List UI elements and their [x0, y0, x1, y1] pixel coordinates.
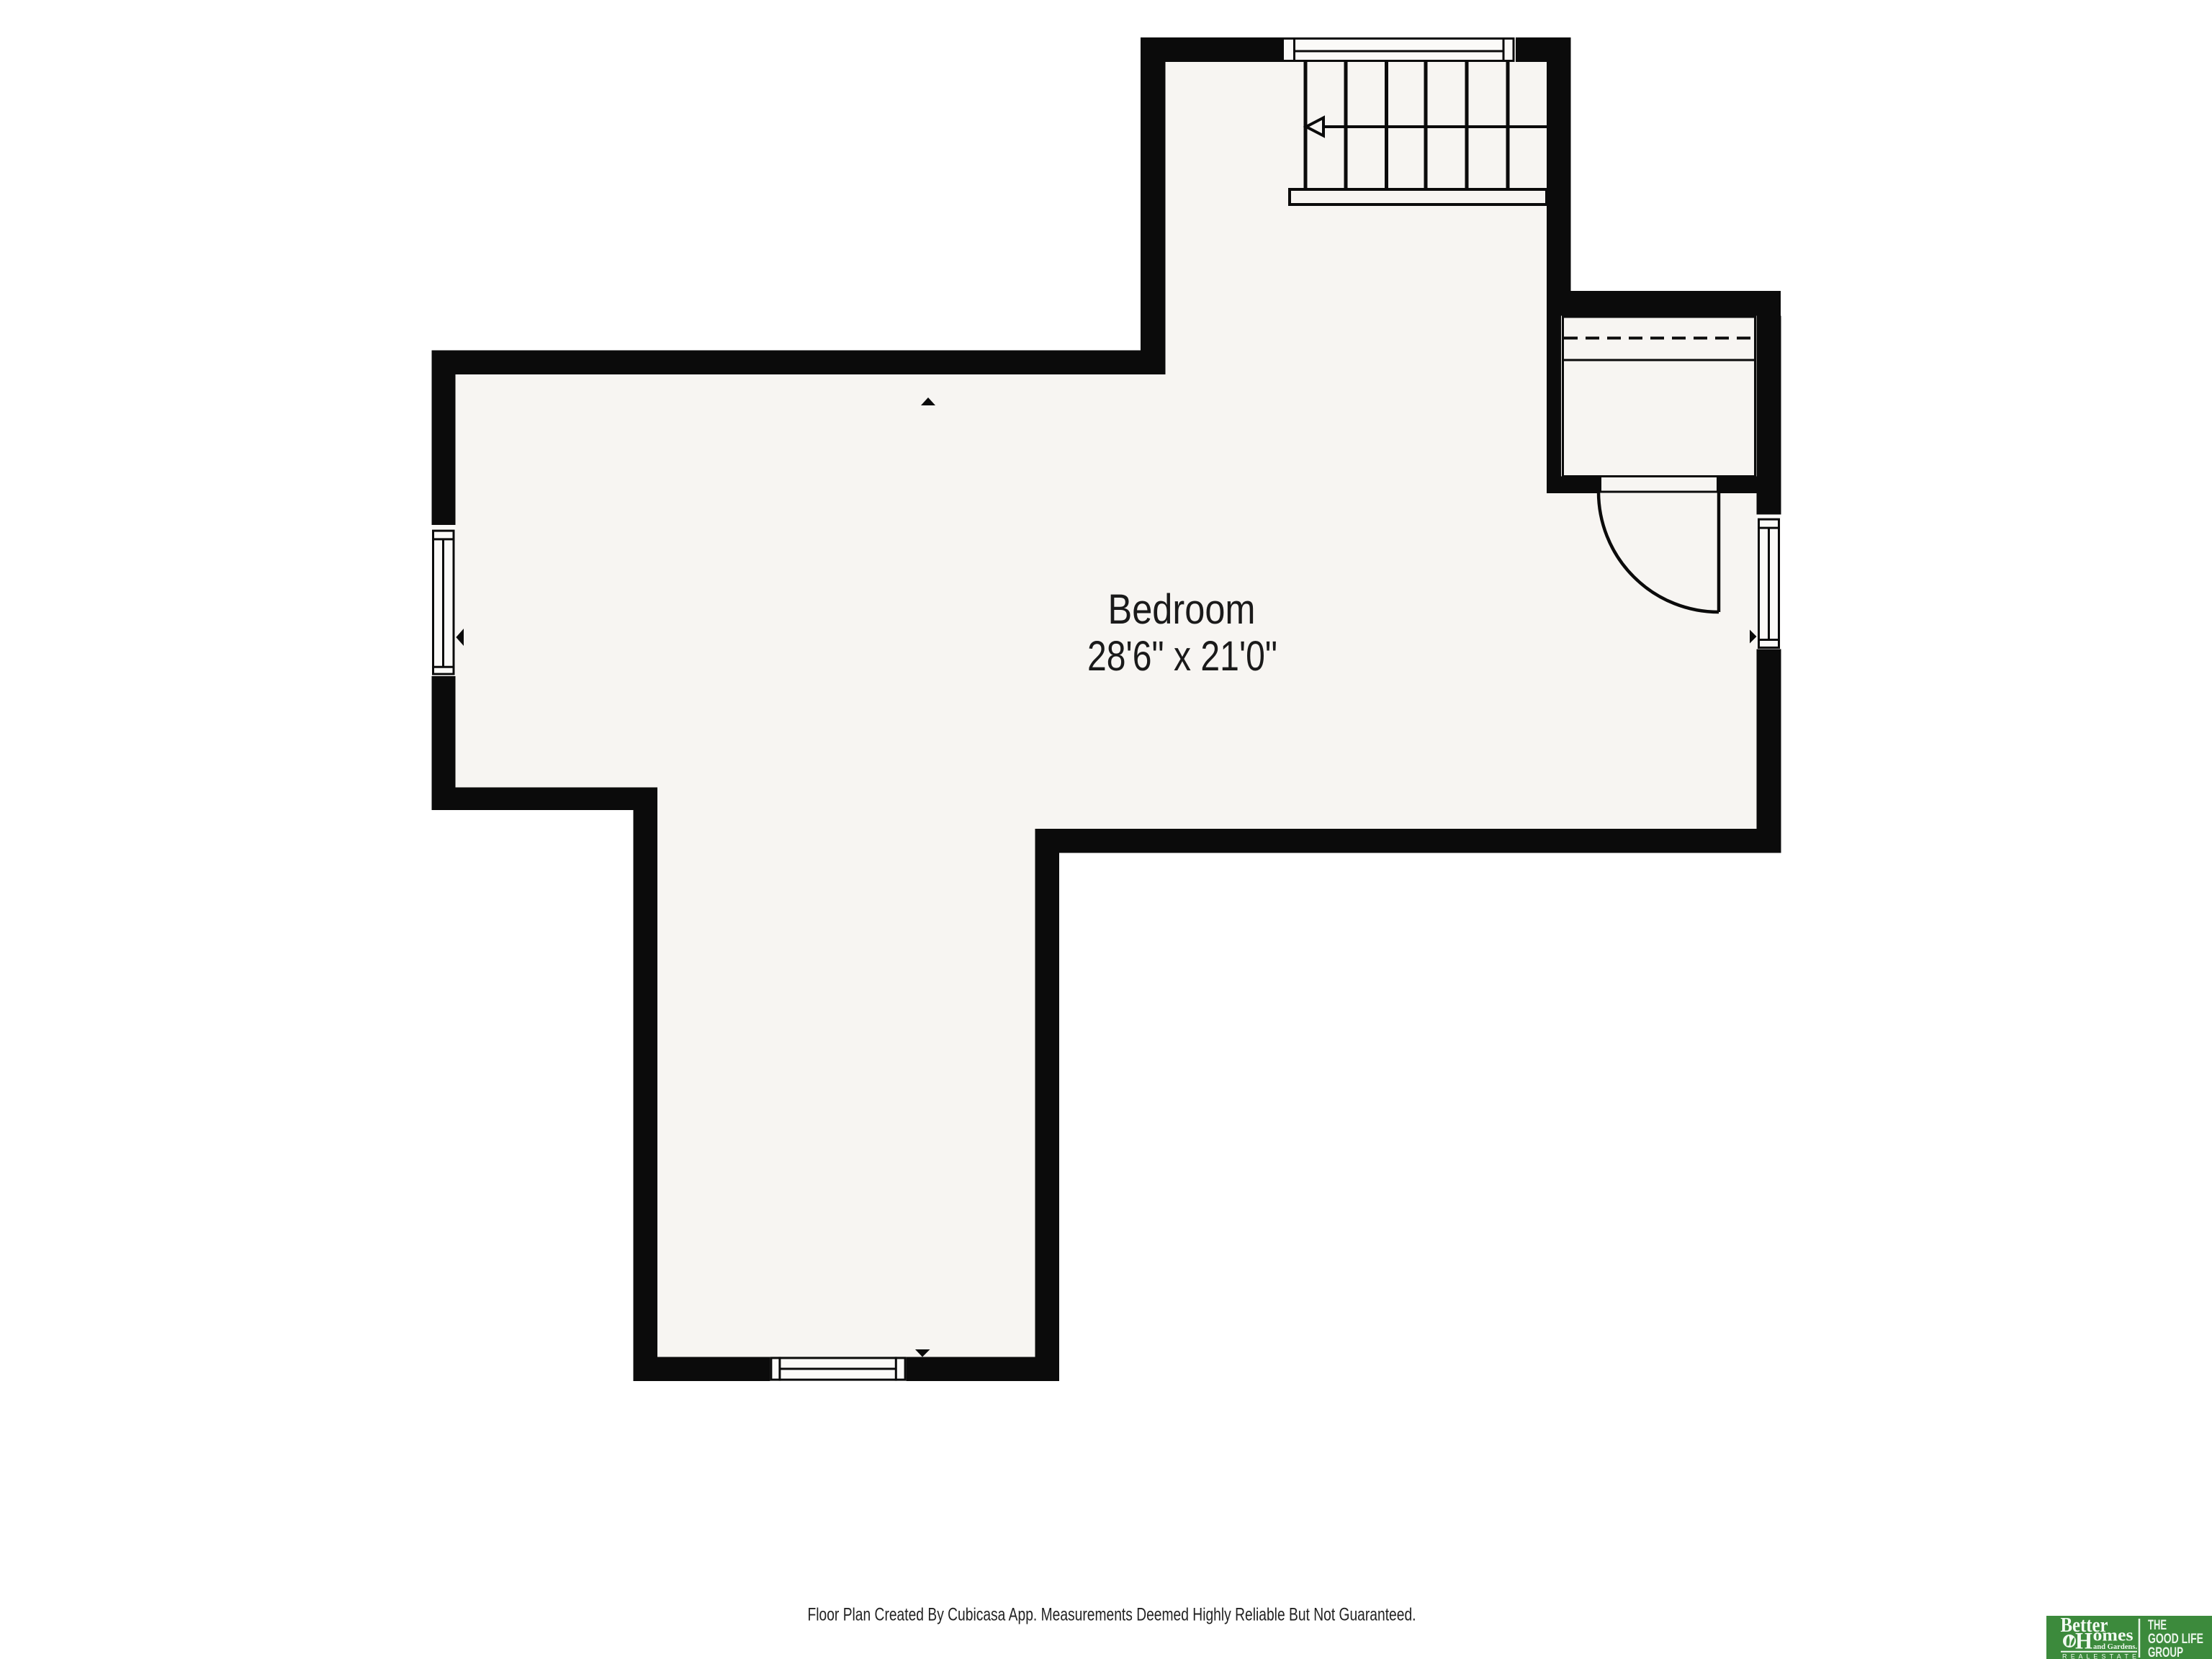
svg-text:Bedroom: Bedroom [1108, 586, 1256, 633]
svg-text:R E A L E S T A T E: R E A L E S T A T E [2062, 1653, 2136, 1659]
svg-text:THE: THE [2148, 1618, 2167, 1633]
svg-text:GOOD LIFE: GOOD LIFE [2148, 1632, 2203, 1647]
svg-text:H: H [2075, 1629, 2092, 1655]
svg-text:28'6" x 21'0": 28'6" x 21'0" [1087, 633, 1277, 680]
svg-text:Floor Plan Created By Cubicasa: Floor Plan Created By Cubicasa App. Meas… [808, 1605, 1416, 1625]
svg-text:GROUP: GROUP [2148, 1645, 2183, 1659]
svg-text:and Gardens.: and Gardens. [2093, 1642, 2137, 1651]
